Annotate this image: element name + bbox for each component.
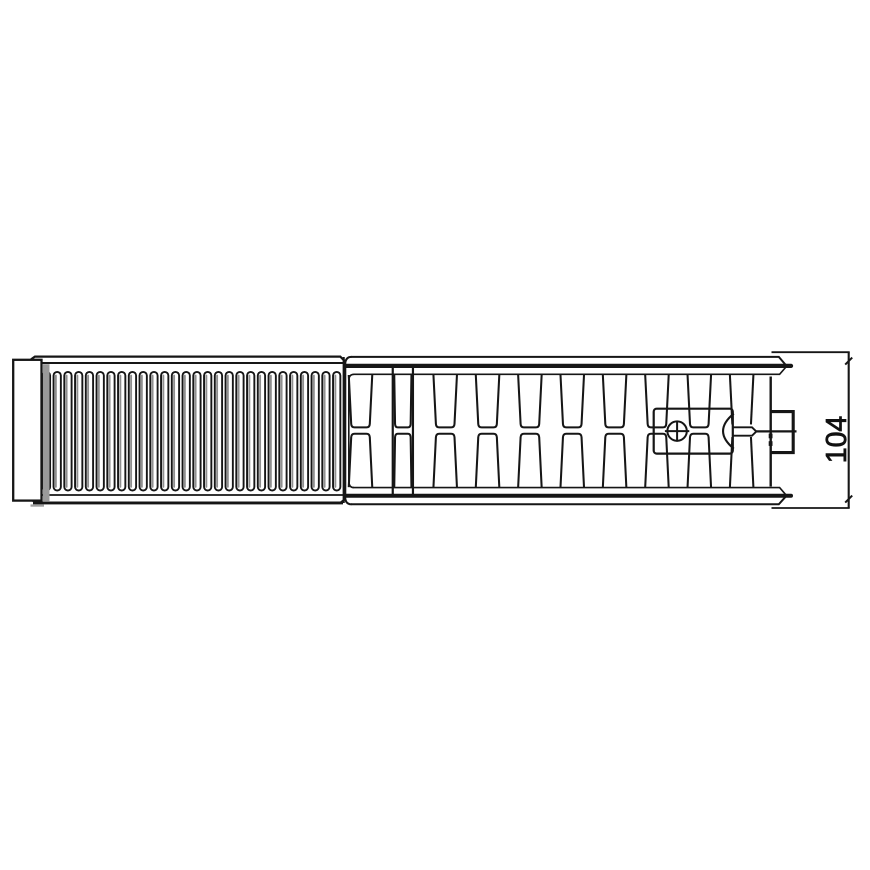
svg-text:104: 104	[821, 416, 853, 464]
